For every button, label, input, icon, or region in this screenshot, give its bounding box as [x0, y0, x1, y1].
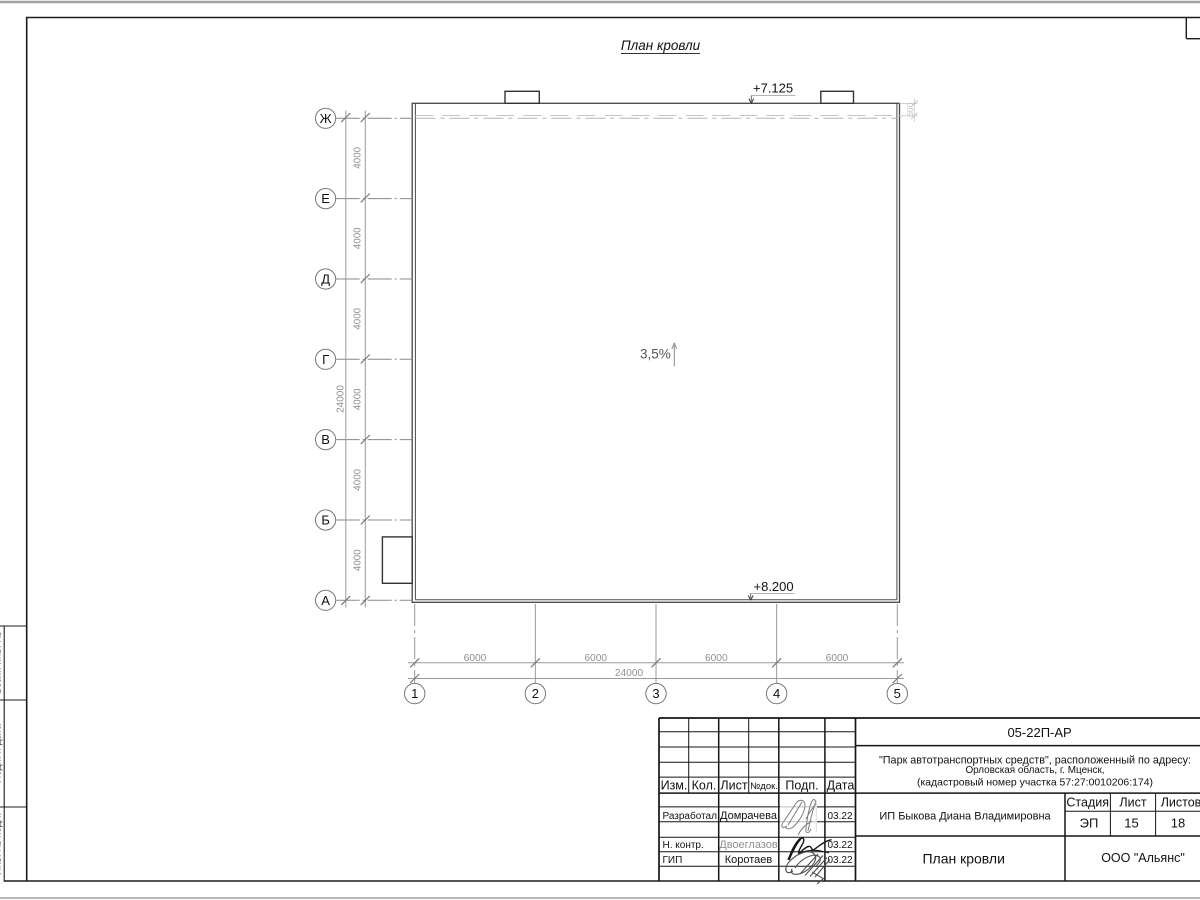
svg-text:03.22: 03.22 — [827, 855, 852, 866]
svg-text:Ж: Ж — [320, 111, 332, 126]
svg-text:4000: 4000 — [353, 468, 364, 490]
svg-text:18: 18 — [1171, 816, 1185, 831]
svg-text:Орловская область, г. Мценск,: Орловская область, г. Мценск, — [965, 765, 1104, 776]
svg-text:24000: 24000 — [615, 668, 644, 679]
svg-text:600: 600 — [905, 102, 915, 116]
svg-text:ИП Быкова Диана Владимировна: ИП Быкова Диана Владимировна — [879, 811, 1051, 823]
svg-text:Лист: Лист — [1119, 796, 1146, 810]
svg-text:6000: 6000 — [464, 653, 487, 664]
svg-text:ГИП: ГИП — [663, 855, 683, 866]
svg-text:План кровли: План кровли — [621, 38, 701, 53]
svg-text:Дата: Дата — [827, 779, 855, 793]
svg-text:Н. контр.: Н. контр. — [663, 840, 704, 851]
svg-text:Инв. № подл.: Инв. № подл. — [0, 813, 3, 875]
svg-text:Разработал: Разработал — [663, 810, 718, 822]
svg-text:Д: Д — [321, 272, 330, 287]
svg-text:4000: 4000 — [353, 549, 364, 571]
svg-text:В: В — [321, 432, 330, 447]
svg-text:ЭП: ЭП — [1080, 816, 1099, 831]
svg-text:03.22: 03.22 — [827, 840, 852, 851]
svg-text:+8.200: +8.200 — [754, 579, 794, 594]
svg-text:Домрачева: Домрачева — [720, 810, 778, 822]
svg-text:Лист: Лист — [720, 779, 747, 793]
svg-text:3: 3 — [652, 686, 659, 701]
svg-text:1: 1 — [411, 686, 418, 701]
svg-text:Изм.: Изм. — [661, 779, 688, 793]
svg-text:03.22: 03.22 — [827, 811, 852, 822]
svg-text:2: 2 — [532, 686, 539, 701]
svg-text:(кадастровый номер участка 57:: (кадастровый номер участка 57:27:0010206… — [917, 778, 1153, 789]
svg-text:Б: Б — [321, 513, 330, 528]
svg-text:6000: 6000 — [826, 653, 849, 664]
svg-text:Коротаев: Коротаев — [725, 854, 773, 866]
svg-text:Двоеглазов: Двоеглазов — [719, 839, 778, 851]
svg-text:Кол.: Кол. — [692, 779, 717, 793]
svg-text:05-22П-АР: 05-22П-АР — [1007, 725, 1071, 740]
svg-text:Стадия: Стадия — [1066, 796, 1109, 810]
svg-text:ООО "Альянс": ООО "Альянс" — [1101, 851, 1185, 865]
svg-text:3,5%: 3,5% — [640, 347, 671, 362]
svg-text:6000: 6000 — [584, 653, 607, 664]
svg-text:Подп.: Подп. — [785, 779, 818, 793]
svg-text:4000: 4000 — [353, 227, 364, 249]
svg-text:План кровли: План кровли — [922, 851, 1004, 867]
svg-text:№док.: №док. — [750, 781, 778, 792]
svg-text:4000: 4000 — [353, 307, 364, 329]
svg-text:4000: 4000 — [353, 146, 364, 168]
svg-text:Листов: Листов — [1161, 796, 1200, 810]
svg-text:15: 15 — [1124, 816, 1138, 831]
svg-text:Е: Е — [321, 191, 330, 206]
svg-text:Подп. и дата: Подп. и дата — [0, 724, 3, 783]
svg-text:Взам. инв. №: Взам. инв. № — [0, 632, 3, 694]
svg-text:А: А — [321, 593, 330, 608]
svg-text:4000: 4000 — [353, 388, 364, 410]
svg-text:Г: Г — [322, 352, 329, 367]
svg-text:6000: 6000 — [705, 653, 728, 664]
svg-text:5: 5 — [894, 686, 901, 701]
svg-text:+7.125: +7.125 — [753, 80, 793, 95]
svg-text:4: 4 — [773, 686, 780, 701]
svg-text:24000: 24000 — [336, 385, 347, 413]
